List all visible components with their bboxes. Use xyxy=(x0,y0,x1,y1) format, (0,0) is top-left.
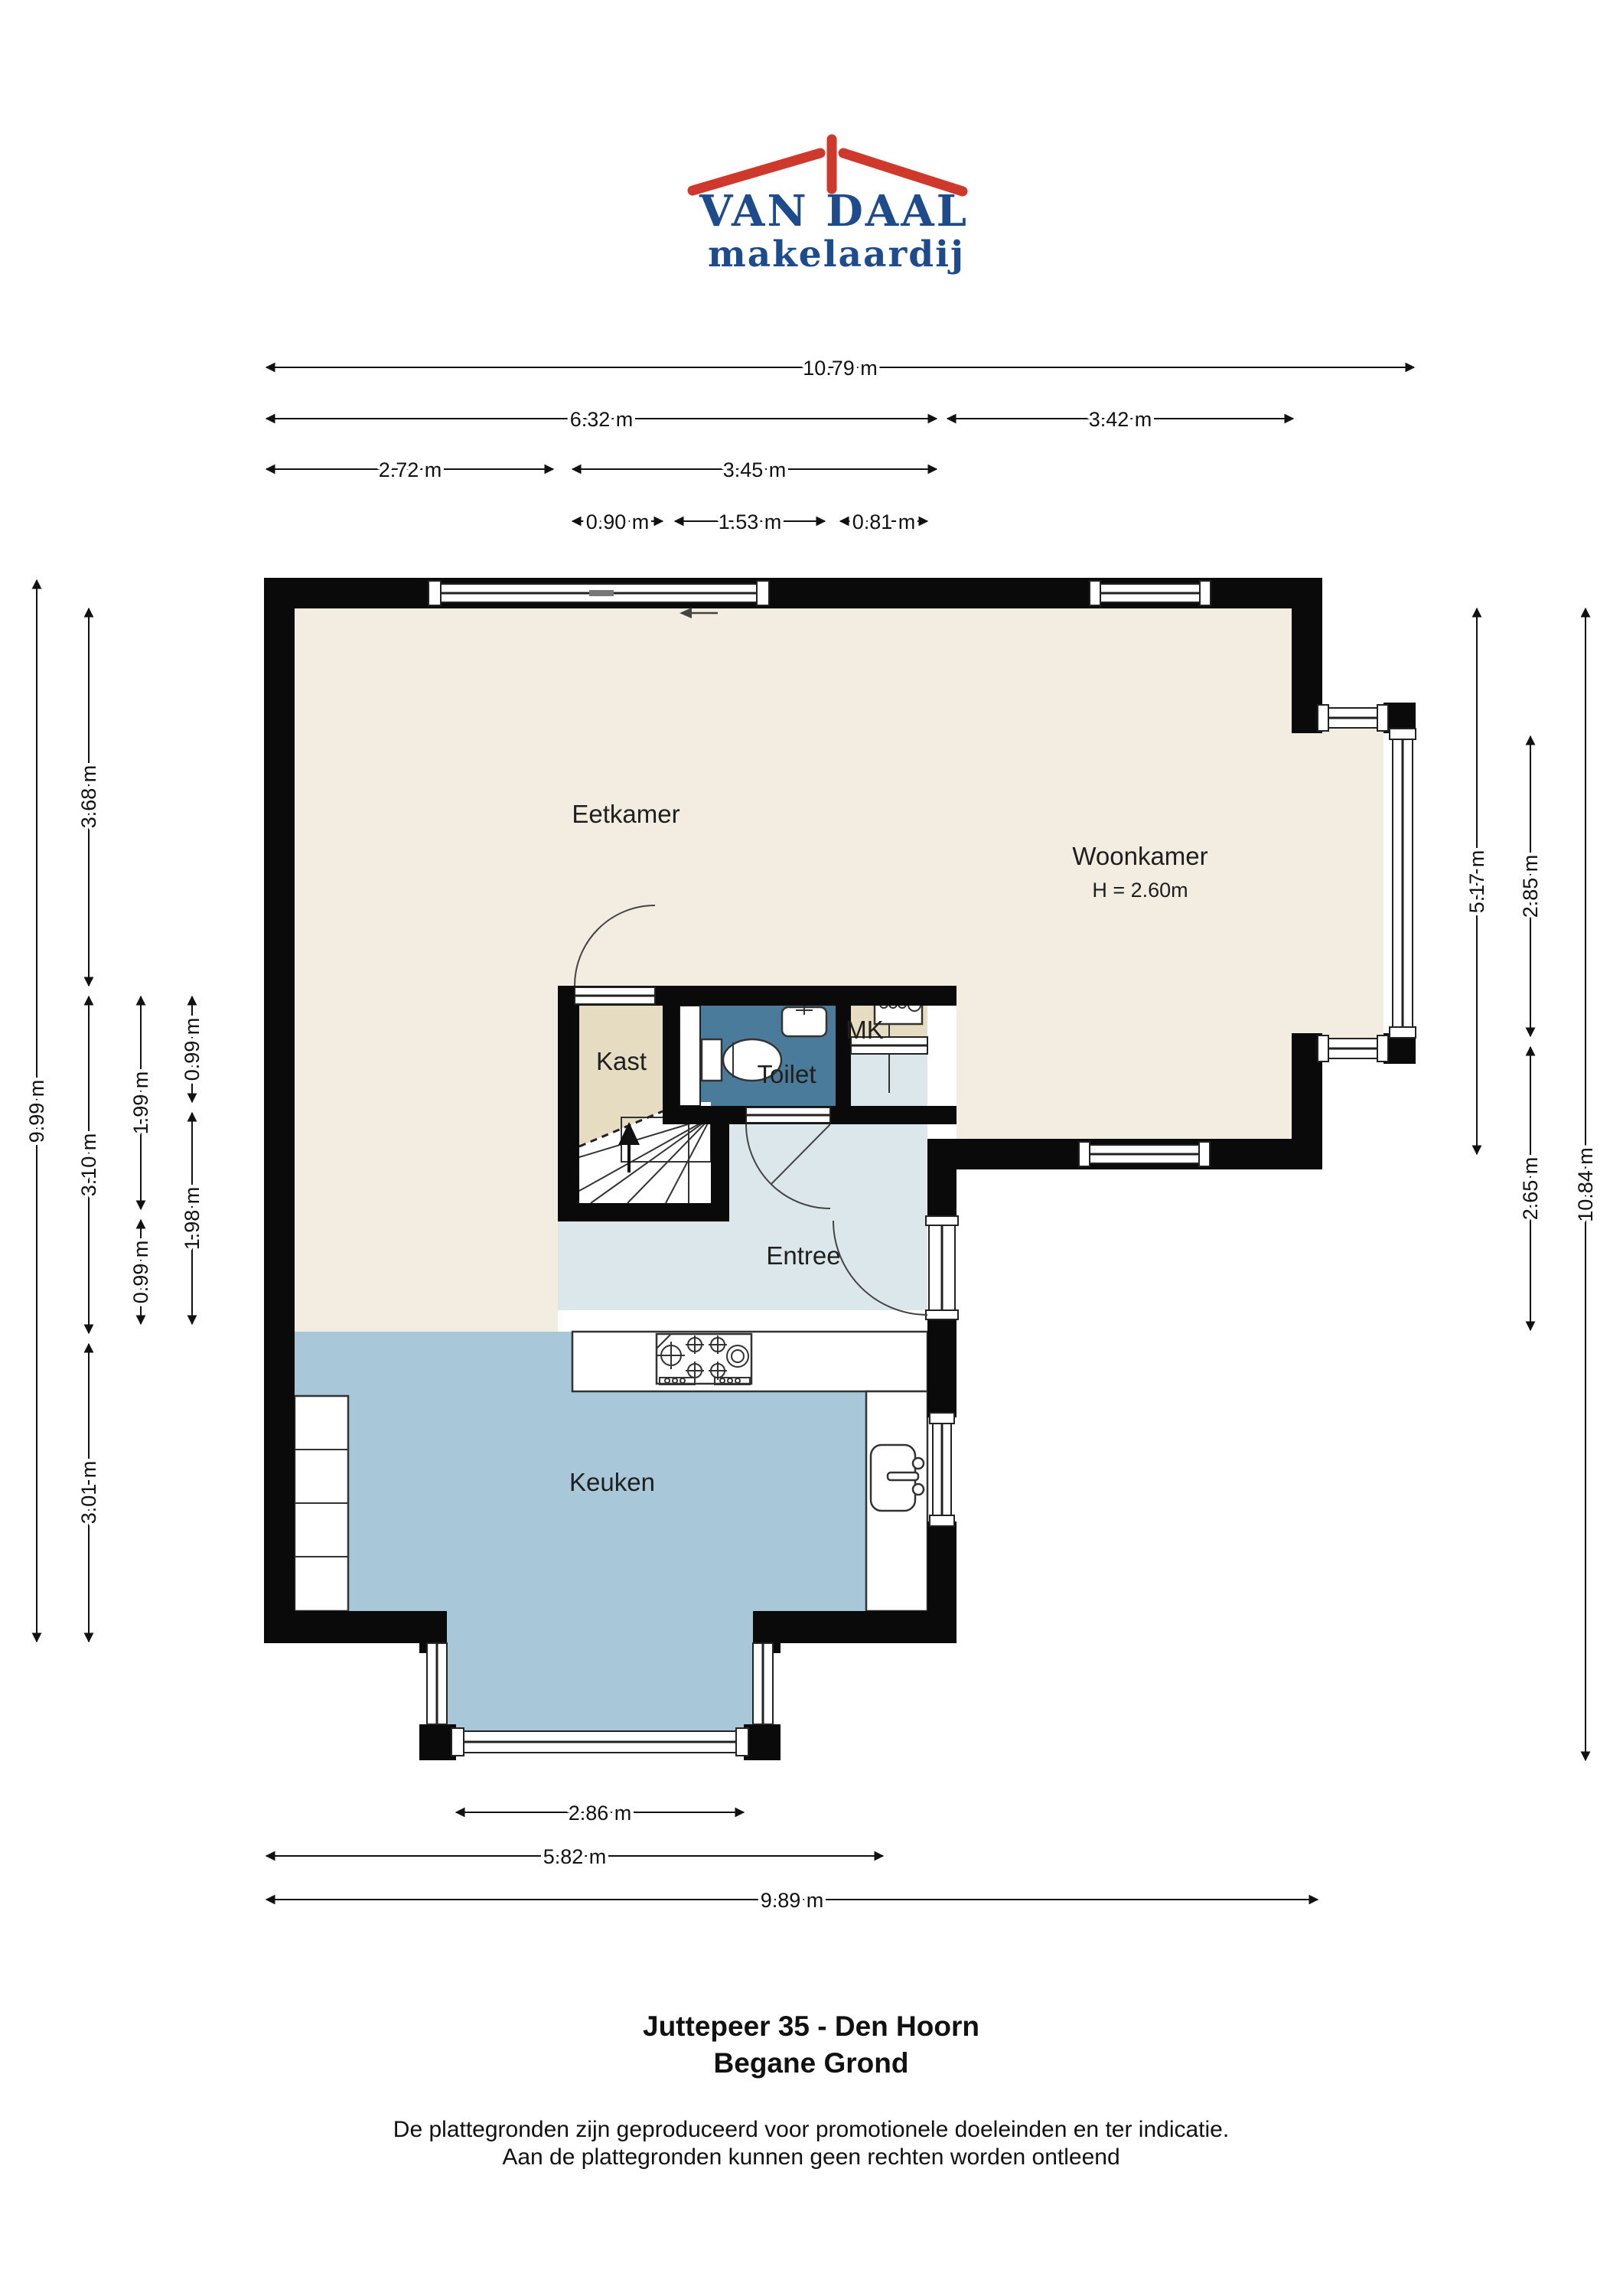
floorplan-canvas: VAN DAAL makelaardij xyxy=(0,0,1623,2296)
dim-top-272: 2.72 m xyxy=(266,458,553,481)
wall-closet-right xyxy=(663,986,680,1117)
svg-text:2.72 m: 2.72 m xyxy=(379,458,442,481)
bay-window-bottom xyxy=(1318,1035,1388,1062)
svg-text:0.81 m: 0.81 m xyxy=(852,510,916,533)
dimensions-top: 10.79 m 6.32 m 3.42 m 2.72 m 3.45 m 0.90… xyxy=(266,357,1414,533)
svg-text:1.99 m: 1.99 m xyxy=(129,1071,152,1135)
dim-right-285: 2.85 m xyxy=(1519,736,1542,1036)
footer-title-floor: Begane Grond xyxy=(714,2047,909,2079)
logo-name: VAN DAAL xyxy=(699,186,969,236)
svg-text:0.90 m: 0.90 m xyxy=(586,510,650,533)
svg-text:10.79 m: 10.79 m xyxy=(803,357,878,380)
floors xyxy=(295,608,1383,1731)
stove-hob xyxy=(657,1334,751,1384)
dim-right-1084: 10.84 m xyxy=(1574,608,1597,1760)
svg-text:3.45 m: 3.45 m xyxy=(723,458,787,481)
dim-left-overall: 9.99 m xyxy=(25,580,48,1642)
svg-text:5.82 m: 5.82 m xyxy=(543,1845,607,1868)
label-eetkamer: Eetkamer xyxy=(572,800,680,828)
svg-text:3.01 m: 3.01 m xyxy=(77,1461,100,1525)
dim-right-517: 5.17 m xyxy=(1465,608,1488,1154)
svg-text:10.84 m: 10.84 m xyxy=(1574,1147,1597,1222)
wc-tank xyxy=(702,1039,722,1081)
dim-top-090: 0.90 m xyxy=(572,510,663,533)
bay-corner-br xyxy=(744,1724,781,1760)
window-livingroom-top xyxy=(1090,581,1211,605)
dimensions-left: 9.99 m 3.68 m 3.10 m 3.01 m 1.99 m 0.99 … xyxy=(25,580,204,1642)
window-kitchen-east xyxy=(930,1413,954,1526)
kitchen-bay-window-right xyxy=(753,1643,773,1724)
dim-right-265: 2.65 m xyxy=(1519,1047,1542,1330)
svg-text:2.85 m: 2.85 m xyxy=(1519,855,1542,918)
logo-subtitle: makelaardij xyxy=(708,233,965,276)
roof-icon xyxy=(693,139,963,191)
footer-disclaimer-1: De plattegronden zijn geproduceerd voor … xyxy=(393,2117,1229,2142)
kitchen-sink xyxy=(871,1445,924,1511)
footer-block: Juttepeer 35 - Den Hoorn Begane Grond De… xyxy=(393,2011,1229,2170)
bay-window-top xyxy=(1318,705,1388,731)
footer-disclaimer-2: Aan de plattegronden kunnen geen rechten… xyxy=(502,2144,1119,2170)
label-toilet: Toilet xyxy=(757,1060,816,1088)
shaft-strip xyxy=(680,1006,700,1106)
dim-bottom-989: 9.89 m xyxy=(266,1889,1318,1912)
wall-entree-east-upper xyxy=(927,1139,957,1221)
svg-text:3.68 m: 3.68 m xyxy=(77,765,100,829)
dim-bottom-286: 2.86 m xyxy=(456,1802,744,1825)
dimensions-right: 5.17 m 2.85 m 2.65 m 10.84 m xyxy=(1465,608,1597,1760)
dim-top-345: 3.45 m xyxy=(572,458,937,481)
dim-left-198: 1.98 m xyxy=(181,1113,204,1324)
svg-text:3.42 m: 3.42 m xyxy=(1089,408,1152,431)
label-keuken: Keuken xyxy=(569,1468,655,1496)
wall-left xyxy=(264,578,295,1643)
dim-left-099a: 0.99 m xyxy=(129,1220,152,1324)
svg-text:6.32 m: 6.32 m xyxy=(570,408,634,431)
dim-top-081: 0.81 m xyxy=(840,510,927,533)
dim-top-right-section: 3.42 m xyxy=(947,408,1293,431)
window-livingroom-bottom xyxy=(1079,1142,1210,1166)
dim-left-368: 3.68 m xyxy=(77,608,100,986)
svg-text:1.98 m: 1.98 m xyxy=(181,1187,204,1251)
wall-stairs-bottom xyxy=(558,1203,729,1221)
dim-left-310: 3.10 m xyxy=(77,996,100,1333)
svg-text:0.99 m: 0.99 m xyxy=(181,1018,204,1081)
svg-text:5.17 m: 5.17 m xyxy=(1465,850,1488,914)
bay-window-east xyxy=(1390,729,1416,1038)
dim-left-301: 3.01 m xyxy=(77,1344,100,1642)
dim-bottom-582: 5.82 m xyxy=(266,1845,883,1868)
label-entree: Entree xyxy=(766,1241,840,1270)
dim-left-099b: 0.99 m xyxy=(181,996,204,1102)
sliding-door-handle xyxy=(589,590,614,596)
label-mk: MK xyxy=(846,1016,884,1044)
label-woonkamer-height: H = 2.60m xyxy=(1092,879,1188,902)
dim-top-overall: 10.79 m xyxy=(266,357,1414,380)
kitchen-bay-window-bottom xyxy=(451,1728,748,1756)
floorplan-page: VAN DAAL makelaardij xyxy=(0,0,1623,2296)
footer-title-address: Juttepeer 35 - Den Hoorn xyxy=(643,2011,979,2042)
svg-text:3.10 m: 3.10 m xyxy=(77,1133,100,1197)
wall-closet-left xyxy=(558,986,579,1221)
svg-text:2.65 m: 2.65 m xyxy=(1519,1157,1542,1221)
label-woonkamer: Woonkamer xyxy=(1072,842,1207,870)
svg-text:2.86 m: 2.86 m xyxy=(569,1802,632,1825)
wall-bottom-left xyxy=(264,1611,438,1643)
svg-text:0.99 m: 0.99 m xyxy=(129,1241,152,1304)
wall-entree-east-lower xyxy=(927,1315,957,1417)
bay-corner-bl xyxy=(419,1724,456,1760)
kitchen-bay-window-left xyxy=(427,1643,447,1724)
svg-text:9.99 m: 9.99 m xyxy=(25,1080,48,1143)
dim-top-153: 1.53 m xyxy=(675,510,825,533)
label-kast: Kast xyxy=(596,1047,647,1075)
wall-bottom-right xyxy=(762,1611,957,1643)
agency-logo: VAN DAAL makelaardij xyxy=(693,139,969,276)
svg-text:1.53 m: 1.53 m xyxy=(719,510,782,533)
dimensions-bottom: 2.86 m 5.82 m 9.89 m xyxy=(266,1802,1318,1912)
svg-text:9.89 m: 9.89 m xyxy=(761,1889,824,1912)
dim-top-left-section: 6.32 m xyxy=(266,408,937,431)
dim-left-199: 1.99 m xyxy=(129,996,152,1209)
